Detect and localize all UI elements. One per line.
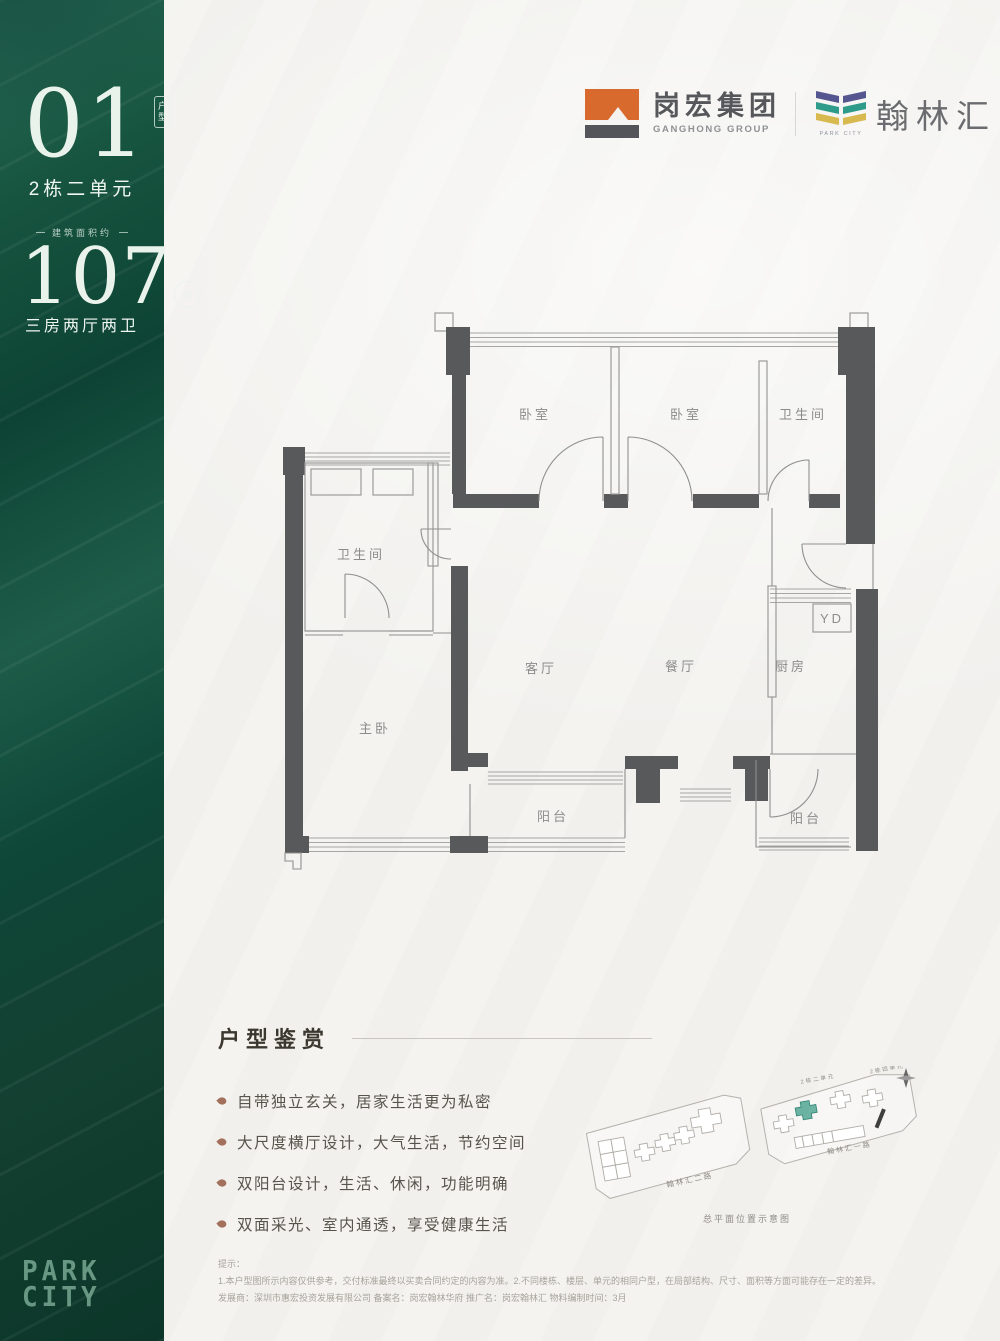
ganghong-logo-icon [583,87,641,141]
park-city-brand: PARK CITY [22,1258,101,1310]
disclaimer-title: 提示： [218,1256,918,1273]
siteplan-phase1-parcel: 2栋二单元 2栋四单元 翰林汇一路 [757,1066,921,1166]
siteplan-phase2-parcel: 翰林汇二路 [584,1092,754,1201]
partitions [285,347,873,869]
area-value: 107 [20,238,172,316]
brand-line1: PARK [22,1258,101,1284]
area-unit-badge: ㎡ [174,281,201,308]
window-band-dining-south [680,789,731,801]
ganghong-text-block: 岗宏集团 GANGHONG GROUP [653,93,781,135]
project-sub: PARK CITY [819,131,862,137]
hanlinhui-logo-icon: PARK CITY [814,87,868,141]
feature-text-4: 双面采光、室内通透，享受健康生活 [237,1213,509,1235]
feature-text-3: 双阳台设计，生活、休闲，功能明确 [237,1172,509,1194]
room-label-kitchen: 厨房 [775,659,807,674]
floorplan: 卧室 卧室 卫生间 卫生间 主卧 客厅 餐厅 厨房 YD 阳台 阳台 [273,297,893,887]
leaf-bullet-icon [216,1218,227,1229]
leaf-bullet-icon [216,1095,227,1106]
feature-text-1: 自带独立玄关，居家生活更为私密 [237,1090,492,1112]
window-band-top [470,333,838,347]
features-header: 户型鉴赏 [218,1022,918,1054]
logo-divider [795,92,796,136]
unit-name: 2栋二单元 [0,174,164,201]
window-band-kitchen-north [770,589,851,603]
room-label-bedroom-2: 卧室 [670,407,702,422]
siteplan: 翰林汇二路 2栋二单元 2栋四单元 翰林汇一路 总平面位置示意图 [582,1066,932,1231]
developer-name: 岗宏集团 [653,93,781,120]
features-title: 户型鉴赏 [218,1022,330,1054]
header-logos: 岗宏集团 GANGHONG GROUP PARK CITY 翰林汇 [583,84,996,144]
developer-sub: GANGHONG GROUP [653,124,781,135]
feature-text-2: 大尺度横厅设计，大气生活，节约空间 [237,1131,526,1153]
sidebar: 01 户型 2栋二单元 建筑面积约 107 ㎡ 三房两厅两卫 PARK CITY [0,0,164,1341]
features-rule [352,1038,652,1039]
building-label-1: 2栋二单元 [800,1072,836,1086]
building-label-2: 2栋四单元 [869,1066,905,1075]
unit-number-row: 01 户型 [24,78,170,172]
area-row: 107 ㎡ [20,238,201,316]
siteplan-caption: 总平面位置示意图 [703,1213,791,1224]
brand-line2: CITY [22,1284,101,1310]
window-band-balcony-center [488,838,625,852]
room-label-balcony-center: 阳台 [537,809,569,824]
room-label-bedroom-1: 卧室 [519,407,551,422]
window-band-living-south [488,772,623,784]
unit-number: 01 [24,78,148,172]
window-band-master-south [309,838,450,852]
room-label-yd: YD [820,611,844,626]
leaf-bullet-icon [216,1136,227,1147]
room-label-bath-top: 卫生间 [779,407,827,422]
leaf-bullet-icon [216,1177,227,1188]
room-label-balcony-right: 阳台 [790,811,822,826]
doors [345,437,846,817]
layout-text: 三房两厅两卫 [0,312,164,336]
unit-type-badge: 户型 [154,96,170,128]
disclaimer-line1: 1.本户型图所示内容仅供参考，交付标准最终以买卖合同约定的内容为准。2.不同楼栋… [218,1273,918,1290]
walls [283,327,878,853]
window-band-balcony-right [759,838,849,850]
room-label-living: 客厅 [525,661,557,676]
disclaimer-line2: 发展商：深圳市惠宏投资发展有限公司 备案名：岗宏翰林华府 推广名：岗宏翰林汇 物… [218,1290,918,1307]
room-label-master: 主卧 [359,721,391,736]
disclaimer: 提示： 1.本户型图所示内容仅供参考，交付标准最终以买卖合同约定的内容为准。2.… [218,1256,918,1307]
room-label-bath-left: 卫生间 [337,547,385,562]
poster-page: 01 户型 2栋二单元 建筑面积约 107 ㎡ 三房两厅两卫 PARK CITY… [0,0,1000,1341]
project-name: 翰林汇 [876,90,996,138]
room-label-dining: 餐厅 [665,659,697,674]
